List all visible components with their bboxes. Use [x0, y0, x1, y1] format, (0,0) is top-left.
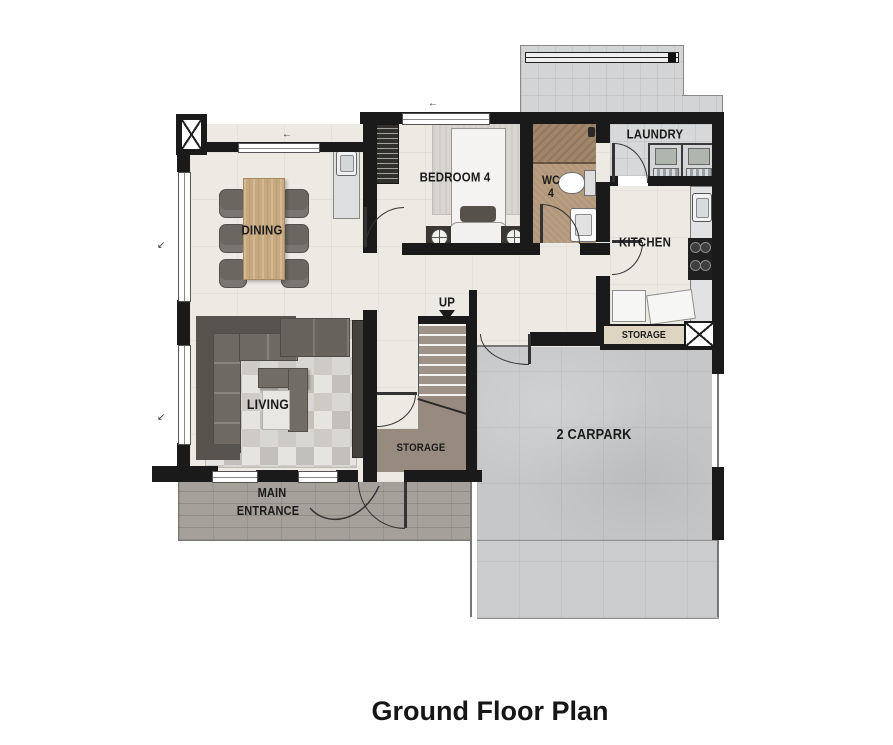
dining-chair [281, 224, 309, 253]
wall-bottom-living-a [190, 470, 212, 482]
toilet-tank [584, 170, 596, 196]
window-swing-arrow-icon: ↙ [157, 240, 165, 251]
wall-wc-bottom [580, 243, 610, 255]
shower-floor [533, 124, 596, 164]
wc-door-leaf [540, 204, 543, 243]
service-yard-extension [682, 95, 723, 113]
wall-right-main [712, 112, 724, 347]
coffee-table-leg [288, 368, 308, 432]
wardrobe [375, 124, 399, 184]
shower-head-icon [588, 127, 595, 137]
room-label-carpark: 2 CARPARK [556, 427, 631, 443]
laundry-door-leaf [612, 143, 615, 182]
room-label-wc-line1: WC [542, 173, 560, 187]
bedroom-door-leaf [364, 207, 367, 247]
shaft-xbox-icon [684, 321, 715, 348]
bed-pillow [460, 206, 496, 222]
entrance-label-line1: MAIN [258, 486, 287, 500]
dining-chair [281, 189, 309, 218]
stairs [418, 324, 467, 404]
window [178, 172, 191, 302]
wall-hall-carpark-h [530, 332, 602, 346]
sink-basin [340, 155, 354, 172]
wall-carpark-right-b [712, 467, 724, 540]
burner-icon [700, 260, 711, 271]
window [212, 471, 258, 483]
sofa-seat-left [213, 333, 241, 453]
sink-basin [696, 198, 709, 218]
carpark-left-line [470, 473, 472, 617]
wall-left-mid [177, 300, 190, 345]
burner-icon [700, 242, 711, 253]
screenshot-root: { "title": "Ground Floor Plan", "labels"… [0, 0, 893, 745]
floor-plan-canvas: ↙ ↙ ← ← STORAGE DINING LIVING BEDROOM 4 … [0, 0, 893, 745]
storage-cabinet [612, 290, 646, 322]
up-arrow-icon [439, 310, 455, 321]
room-label-living: LIVING [247, 396, 289, 412]
backdoor-leaf [528, 334, 531, 364]
room-label-bedroom4: BEDROOM 4 [420, 170, 491, 185]
wall-wc-right-mid [596, 182, 610, 242]
wall-bedroom-bottom [402, 243, 540, 255]
room-label-storage-stairs: STORAGE [397, 442, 446, 454]
pantry-sink-icon [336, 151, 357, 176]
plan-title: Ground Floor Plan [90, 696, 890, 727]
kitchen-sink-icon [692, 193, 712, 222]
driveway-floor [477, 540, 719, 619]
room-label-laundry: LAUNDRY [627, 127, 684, 142]
wall-bedroom-wc [520, 112, 533, 253]
stairs-up-label: UP [439, 295, 455, 310]
window [402, 113, 490, 125]
wall-wc-right-upper [596, 112, 610, 143]
wall-laundry-bottom-b [648, 176, 722, 186]
room-label-kitchen: KITCHEN [619, 235, 671, 250]
railing-post [668, 53, 676, 62]
yard-railing [525, 52, 679, 63]
washer-lid [655, 148, 677, 165]
toilet-icon [558, 172, 585, 194]
window-swing-arrow-icon: ← [282, 129, 292, 140]
window-swing-arrow-icon: ← [428, 98, 438, 109]
room-label-wc-line2: 4 [548, 186, 554, 200]
storage-door-leaf [377, 392, 417, 395]
entrance-leader-line [285, 480, 405, 540]
dining-chair [281, 259, 309, 288]
wall-carpark-right-a [712, 347, 724, 374]
storage-tag: STORAGE [602, 324, 686, 346]
wall-stairs-right [466, 322, 477, 473]
sofa-chaise [280, 318, 350, 357]
wall-living-stairs [363, 310, 377, 482]
storage-tag-label: STORAGE [622, 329, 666, 341]
carpark-floor [477, 347, 712, 540]
room-label-dining: DINING [241, 223, 282, 238]
washer-lid [688, 148, 710, 165]
sofa-back-left [196, 316, 213, 458]
window-swing-arrow-icon: ↙ [157, 412, 165, 423]
sofa-arm-bottom [196, 444, 240, 460]
stove-icon [688, 238, 712, 280]
column-xbox-icon [180, 118, 203, 151]
window [238, 143, 320, 153]
window [178, 345, 191, 445]
storage-cabinet [646, 289, 696, 325]
